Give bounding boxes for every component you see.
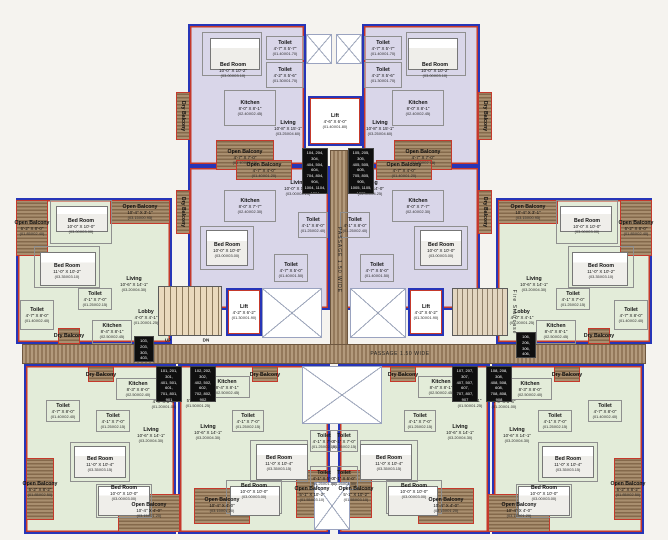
- room-size-m: (03.20X04.30): [120, 287, 148, 292]
- room-size-m: (02.50X02.45): [429, 390, 454, 395]
- room-name: Dry Balcony: [388, 372, 418, 378]
- shaft-x-region: [262, 288, 322, 338]
- room-size-m: (03.35X03.10): [53, 274, 80, 279]
- page: { "palette":{"unit_purple":"#d9d6e9","un…: [0, 0, 668, 540]
- room-size-m: (03.15X01.20): [429, 508, 464, 513]
- room-size-m: (01.40X01.70): [371, 51, 396, 56]
- room-size-m: (01.55X03.10): [295, 497, 330, 502]
- room-size-m: (02.50X02.45): [215, 390, 240, 395]
- passage-horizontal-label: PASSAGE 1.50 WIDE: [370, 351, 429, 357]
- label-bed-room: Bed Room11'-0" X 10'-4"(03.35X03.15): [375, 455, 402, 471]
- room-size-m: (01.30X01.70): [371, 78, 396, 83]
- room-size-m: (02.40X02.45): [406, 111, 431, 116]
- room-size-m: (03.35X03.15): [375, 466, 402, 471]
- label-open-balcony: Open Balcony4'-7" X 4'-0"(01.40X01.20): [387, 162, 422, 178]
- label-open-balcony: Open Balcony10'-4" X 4'-0"(03.15X01.20): [132, 502, 167, 518]
- room-size-m: (03.00X03.10): [421, 73, 449, 78]
- label-open-balcony: Open Balcony6'-2" X 8'-0"(01.85X02.40): [15, 220, 50, 236]
- room-size-m: (02.40X02.30): [406, 209, 431, 214]
- room-size-m: (01.85X02.50): [23, 492, 58, 497]
- label-toilet: Toilet4'-7" X 5'-0"(01.40X01.50): [365, 262, 390, 278]
- room-size-m: (01.40X01.20): [387, 173, 422, 178]
- label-bed-room: Bed Room10'-0" X 10'-0"(03.00X03.00): [110, 485, 138, 501]
- label-toilet: Toilet4'-2" X 5'-6"(01.30X01.70): [371, 67, 396, 83]
- label-bed-room: Bed Room10'-0" X 10'-0"(03.00X03.00): [213, 242, 241, 258]
- label-kitchen: Kitchen8'-0" X 8'-1"(02.40X02.45): [406, 100, 431, 116]
- room-size-m: (03.35X03.15): [86, 467, 113, 472]
- room-name: Dry Balcony: [86, 372, 116, 378]
- room-size-m: (03.00X03.00): [573, 229, 601, 234]
- label-bed-room: Bed Room10'-0" X 10'-0"(03.00X03.00): [573, 218, 601, 234]
- room-size-m: (03.00X03.00): [110, 496, 138, 501]
- main-staircase: [158, 286, 222, 336]
- room-name: Dry Balcony: [250, 372, 280, 378]
- label-bed-room: Bed Room11'-0" X 10'-4"(03.35X03.15): [86, 456, 113, 472]
- label-open-balcony: Open Balcony6'-2" X 8'-2"(01.85X02.50): [23, 481, 58, 497]
- label-bed-room: Bed Room11'-0" X 10'-4"(03.35X03.15): [265, 455, 292, 471]
- room-size-m: (01.25X02.15): [408, 424, 433, 429]
- room-size-m: (01.25X02.15): [101, 424, 126, 429]
- room-size-m: (03.15X01.20): [132, 513, 167, 518]
- label-living: Living10'-6" X 14'-1"(03.20X04.30): [137, 427, 165, 443]
- room-size-m: (03.25X04.60): [366, 131, 394, 136]
- label-open-balcony: Open Balcony10'-4" X 3'-1"(03.15X00.95): [123, 204, 158, 220]
- room-name: Dry Balcony: [54, 333, 84, 339]
- label-toilet: Toilet4'-1" X 7'-0"(01.25X02.15): [236, 413, 261, 429]
- room-name: Dry Balcony: [482, 101, 488, 131]
- label-kitchen: Kitchen8'-0" X 7'-7"(02.40X02.30): [406, 198, 431, 214]
- label-bed-room: Bed Room11'-0" X 10'-2"(03.35X03.10): [587, 263, 614, 279]
- room-size-m: (01.25X02.40): [301, 228, 326, 233]
- room-size-m: (01.25X02.15): [561, 302, 586, 307]
- fire-staircase: [452, 288, 508, 336]
- room-name: Dry Balcony: [482, 197, 488, 227]
- label-bed-room: Bed Room11'-0" X 10'-2"(03.35X03.10): [53, 263, 80, 279]
- label-lift: Lift4'-6" X 6'-0"(01.40X01.80): [323, 113, 348, 129]
- label-toilet: Toilet4'-7" X 5'-0"(01.40X01.50): [279, 262, 304, 278]
- label-open-balcony: Open Balcony10'-4" X 4'-0"(03.15X01.20): [205, 497, 240, 513]
- label-toilet: Toilet4'-7" X 5'-7"(01.40X01.70): [371, 40, 396, 56]
- room-size-m: (02.50X02.40): [518, 392, 543, 397]
- room-size-m: (01.20X01.25): [510, 320, 535, 325]
- room-size-m: (01.25X02.15): [236, 424, 261, 429]
- room-size-m: (01.30X01.90): [232, 315, 257, 320]
- label-open-balcony: Open Balcony10'-4" X 4'-0"(03.15X01.20): [429, 497, 464, 513]
- label-living: Living10'-6" X 14'-1"(03.20X04.30): [120, 276, 148, 292]
- label-dry-balcony: Dry Balcony: [180, 101, 186, 131]
- room-size-m: (01.30X01.90): [414, 315, 439, 320]
- label-kitchen: Kitchen8'-4" X 8'-1"(02.50X02.45): [544, 323, 569, 339]
- stair-up-label: UP: [165, 338, 171, 343]
- shaft-x-region: [350, 288, 406, 338]
- label-dry-balcony: Dry Balcony: [388, 372, 418, 378]
- room-size-m: (03.15X00.95): [123, 215, 158, 220]
- label-bed-room: Bed Room10'-0" X 10'-2"(03.00X03.10): [219, 62, 247, 78]
- label-toilet: Toilet4'-7" X 8'-0"(01.40X02.40): [619, 307, 644, 323]
- room-size-m: (01.40X02.40): [25, 318, 50, 323]
- room-name: Dry Balcony: [584, 333, 614, 339]
- label-dry-balcony: Dry Balcony: [54, 333, 84, 339]
- label-open-balcony: Open Balcony6'-2" X 8'-2"(01.85X02.50): [611, 481, 646, 497]
- room-size-m: (03.20X04.30): [520, 287, 548, 292]
- label-bed-room: Bed Room10'-0" X 10'-2"(03.00X03.10): [421, 62, 449, 78]
- label-lobby: Lobby4'-0" X 4'-1"(01.20X01.25): [510, 309, 535, 325]
- room-size-m: (03.25X04.60): [274, 131, 302, 136]
- label-open-balcony: Open Balcony10'-4" X 3'-1"(03.15X00.95): [511, 204, 546, 220]
- room-size-m: (01.40X01.50): [365, 273, 390, 278]
- room-size-m: (01.20X01.00): [152, 404, 177, 409]
- label-kitchen: Kitchen8'-3" X 8'-0"(02.50X02.40): [518, 381, 543, 397]
- room-size-m: (01.40X01.70): [273, 51, 298, 56]
- shaft-x-region: [336, 34, 362, 64]
- room-size-m: (03.15X01.20): [502, 513, 537, 518]
- label-toilet: Toilet4'-1" X 8'-0"(01.25X02.40): [343, 217, 368, 233]
- label-bed-room: Bed Room10'-0" X 10'-0"(03.00X03.00): [427, 242, 455, 258]
- room-name: Dry Balcony: [180, 197, 186, 227]
- stair-dn-label: DN: [203, 338, 210, 343]
- room-size-m: (01.85X02.40): [619, 231, 654, 236]
- room-name: Dry Balcony: [180, 101, 186, 131]
- room-size-m: (03.00X03.00): [530, 496, 558, 501]
- room-size-m: (03.15X01.20): [205, 508, 240, 513]
- label-bed-room: Bed Room10'-0" X 10'-0"(03.00X03.00): [530, 485, 558, 501]
- room-size-m: (01.25X02.15): [332, 444, 357, 449]
- label-open-balcony: Open Balcony6'-2" X 8'-0"(01.85X02.40): [619, 220, 654, 236]
- room-size-m: (03.00X03.00): [67, 229, 95, 234]
- flat-number-box: 104, 204, 304, 404, 504, 604, 704, 804, …: [302, 148, 328, 194]
- label-kitchen: Kitchen8'-4" X 8'-1"(02.50X02.45): [215, 379, 240, 395]
- room-size-m: (02.40X02.45): [238, 111, 263, 116]
- room-size-m: (01.40X01.50): [279, 273, 304, 278]
- room-size-m: (01.50X01.25): [186, 403, 211, 408]
- room-size-m: (01.20X01.00): [492, 404, 517, 409]
- label-dry-balcony: Dry Balcony: [86, 372, 116, 378]
- label-living: Living10'-6" X 14'-1"(03.20X04.30): [520, 276, 548, 292]
- flat-number-box: 107, 207, 307, 407, 507, 607, 707, 807, …: [452, 366, 478, 402]
- label-living: Living10'-6" X 14'-1"(03.20X04.30): [194, 424, 222, 440]
- room-size-m: (03.35X03.15): [554, 467, 581, 472]
- room-size-m: (01.40X02.40): [619, 318, 644, 323]
- flat-number-box: 102, 202, 302, 402, 502, 602, 702, 802, …: [190, 366, 216, 402]
- room-size-m: (01.40X01.80): [323, 124, 348, 129]
- shaft-x-region: [302, 366, 382, 424]
- flat-number-box: 103, 203, 303, 403, 503, 603, 703, 803, …: [134, 336, 154, 362]
- room-size-m: (03.15X00.95): [511, 215, 546, 220]
- label-toilet: Toilet4'-1" X 7'-0"(01.25X02.15): [101, 413, 126, 429]
- room-size-m: (03.00X03.00): [427, 253, 455, 258]
- room-size-m: (03.00X03.10): [219, 73, 247, 78]
- room-size-m: (03.20X04.30): [503, 438, 531, 443]
- label-kitchen: Kitchen8'-3" X 8'-0"(02.50X02.40): [126, 381, 151, 397]
- label-open-balcony: Open Balcony5'-1" X 10'-2"(01.55X03.10): [339, 486, 374, 502]
- label-lift: Lift4'-2" X 6'-2"(01.30X01.90): [232, 304, 257, 320]
- shaft-x-region: [306, 34, 332, 64]
- flat-number-box: 101, 201, 301, 401, 501, 601, 701, 801, …: [156, 366, 182, 402]
- room-size-m: (01.55X03.10): [339, 497, 374, 502]
- label-toilet: Toilet4'-1" X 8'-0"(01.25X02.40): [301, 217, 326, 233]
- room-size-m: (03.35X03.10): [587, 274, 614, 279]
- label-toilet: Toilet4'-1" X 7'-0"(01.25X02.15): [332, 433, 357, 449]
- label-open-balcony: Open Balcony4'-7" X 4'-0"(01.40X01.20): [247, 162, 282, 178]
- room-size-m: (03.20X04.30): [137, 438, 165, 443]
- room-size-m: (01.85X02.40): [15, 231, 50, 236]
- label-lift: Lift4'-2" X 6'-2"(01.30X01.90): [414, 304, 439, 320]
- label-toilet: Toilet4'-1" X 5'-0"(01.25X01.50): [332, 470, 357, 486]
- flat-number-box: 106, 206, 306, 406, 506, 606, 706, 806, …: [516, 332, 536, 358]
- room-size-m: (02.50X02.45): [544, 334, 569, 339]
- label-kitchen: Kitchen8'-4" X 8'-1"(02.50X02.45): [100, 323, 125, 339]
- label-kitchen: Kitchen8'-4" X 8'-1"(02.50X02.45): [429, 379, 454, 395]
- floor-plan-canvas: UP DN Fire Staircase PASSAGE 1.50 WIDE P…: [0, 0, 668, 540]
- label-living: Living10'-6" X 14'-1"(03.20X04.30): [446, 424, 474, 440]
- label-bed-room: Bed Room10'-0" X 10'-0"(03.00X03.00): [240, 483, 268, 499]
- room-size-m: (02.40X02.30): [238, 209, 263, 214]
- room-size-m: (01.85X02.50): [611, 492, 646, 497]
- label-bed-room: Bed Room10'-0" X 10'-0"(03.00X03.00): [67, 218, 95, 234]
- label-dry-balcony: Dry Balcony: [552, 372, 582, 378]
- label-toilet: Toilet4'-7" X 8'-0"(01.40X02.40): [593, 403, 618, 419]
- room-size-m: (01.20X01.25): [134, 320, 159, 325]
- label-living: Living10'-6" X 14'-1"(03.20X04.30): [503, 427, 531, 443]
- label-bed-room: Bed Room10'-0" X 10'-0"(03.00X03.00): [400, 483, 428, 499]
- label-living: Living10'-8" X 15'-1"(03.25X04.60): [366, 120, 394, 136]
- passage-vertical-label: PASSAGE 1.50 WIDE: [336, 227, 342, 293]
- room-size-m: (02.50X02.40): [126, 392, 151, 397]
- room-name: Dry Balcony: [552, 372, 582, 378]
- room-size-m: (01.50X01.25): [458, 403, 483, 408]
- label-toilet: Toilet4'-2" X 5'-6"(01.30X01.70): [273, 67, 298, 83]
- label-dry-balcony: Dry Balcony: [482, 101, 488, 131]
- label-dry-balcony: Dry Balcony: [482, 197, 488, 227]
- label-kitchen: Kitchen8'-0" X 7'-7"(02.40X02.30): [238, 198, 263, 214]
- room-size-m: (02.50X02.45): [100, 334, 125, 339]
- label-toilet: Toilet4'-1" X 7'-0"(01.25X02.15): [83, 291, 108, 307]
- room-size-m: (01.25X02.15): [83, 302, 108, 307]
- label-dry-balcony: Dry Balcony: [584, 333, 614, 339]
- label-living: Living10'-8" X 15'-1"(03.25X04.60): [274, 120, 302, 136]
- label-bed-room: Bed Room11'-0" X 10'-4"(03.35X03.15): [554, 456, 581, 472]
- room-size-m: (03.00X03.00): [400, 494, 428, 499]
- flat-number-box: 105, 205, 305, 405, 505, 605, 705, 805, …: [348, 148, 374, 194]
- label-toilet: Toilet4'-7" X 5'-7"(01.40X01.70): [273, 40, 298, 56]
- label-toilet: Toilet4'-1" X 7'-0"(01.25X02.15): [561, 291, 586, 307]
- flat-number-box: 108, 208, 308, 408, 508, 608, 708, 808, …: [486, 366, 512, 402]
- room-size-m: (01.40X02.40): [51, 414, 76, 419]
- room-size-m: (01.40X02.40): [593, 414, 618, 419]
- label-open-balcony: Open Balcony10'-4" X 4'-0"(03.15X01.20): [502, 502, 537, 518]
- room-size-m: (01.30X01.70): [273, 78, 298, 83]
- room-size-m: (01.25X02.15): [543, 424, 568, 429]
- label-toilet: Toilet4'-7" X 8'-0"(01.40X02.40): [25, 307, 50, 323]
- label-toilet: Toilet4'-7" X 8'-0"(01.40X02.40): [51, 403, 76, 419]
- passage-horizontal: [22, 344, 646, 364]
- room-size-m: (03.00X03.00): [240, 494, 268, 499]
- label-toilet: Toilet4'-1" X 7'-0"(01.25X02.15): [543, 413, 568, 429]
- label-open-balcony: Open Balcony5'-1" X 10'-2"(01.55X03.10): [295, 486, 330, 502]
- label-lobby: Lobby4'-0" X 4'-1"(01.20X01.25): [134, 309, 159, 325]
- room-size-m: (01.25X02.40): [343, 228, 368, 233]
- room-size-m: (01.40X01.20): [247, 173, 282, 178]
- room-size-m: (03.00X03.00): [213, 253, 241, 258]
- label-kitchen: Kitchen8'-0" X 8'-1"(02.40X02.45): [238, 100, 263, 116]
- room-size-m: (03.20X04.30): [446, 435, 474, 440]
- room-size-m: (03.35X03.15): [265, 466, 292, 471]
- label-dry-balcony: Dry Balcony: [180, 197, 186, 227]
- label-toilet: Toilet4'-1" X 7'-0"(01.25X02.15): [408, 413, 433, 429]
- room-size-m: (03.20X04.30): [194, 435, 222, 440]
- label-dry-balcony: Dry Balcony: [250, 372, 280, 378]
